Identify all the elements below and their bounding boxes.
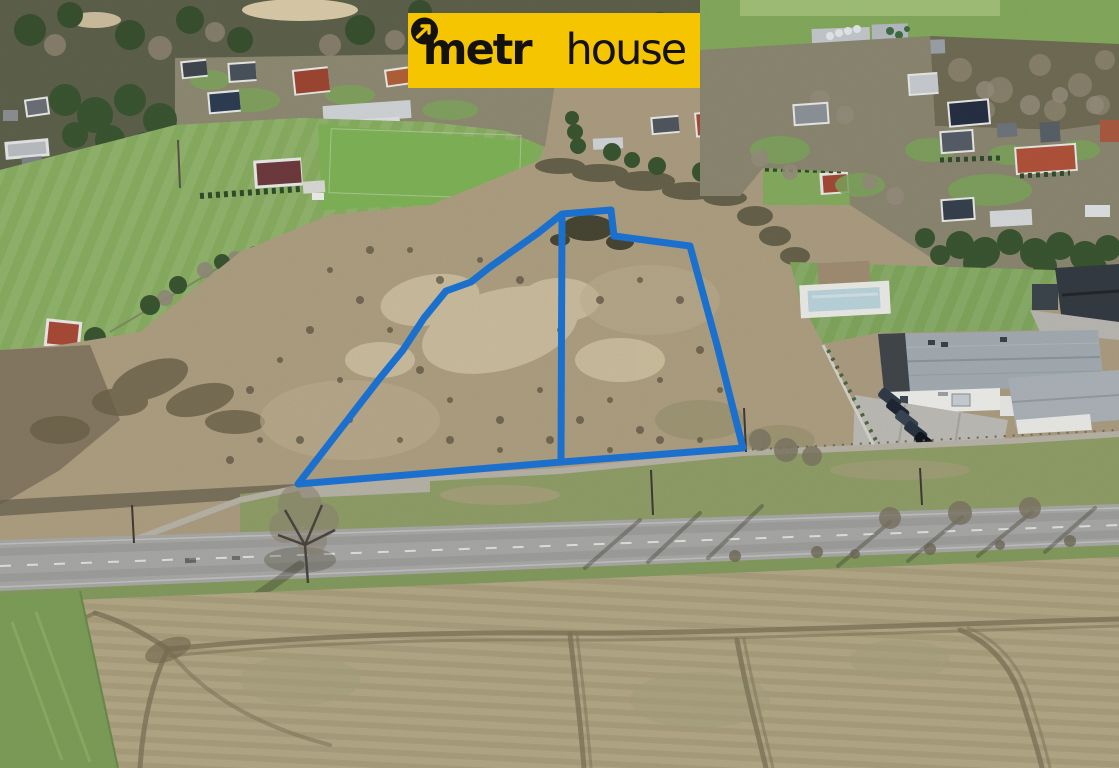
plot-divider-line bbox=[561, 218, 562, 461]
logo-text-house: house bbox=[566, 29, 686, 72]
metrohouse-o-arrow-icon bbox=[532, 34, 565, 67]
aerial-photo: metr house bbox=[0, 0, 1119, 768]
metrohouse-logo: metr house bbox=[408, 13, 700, 88]
